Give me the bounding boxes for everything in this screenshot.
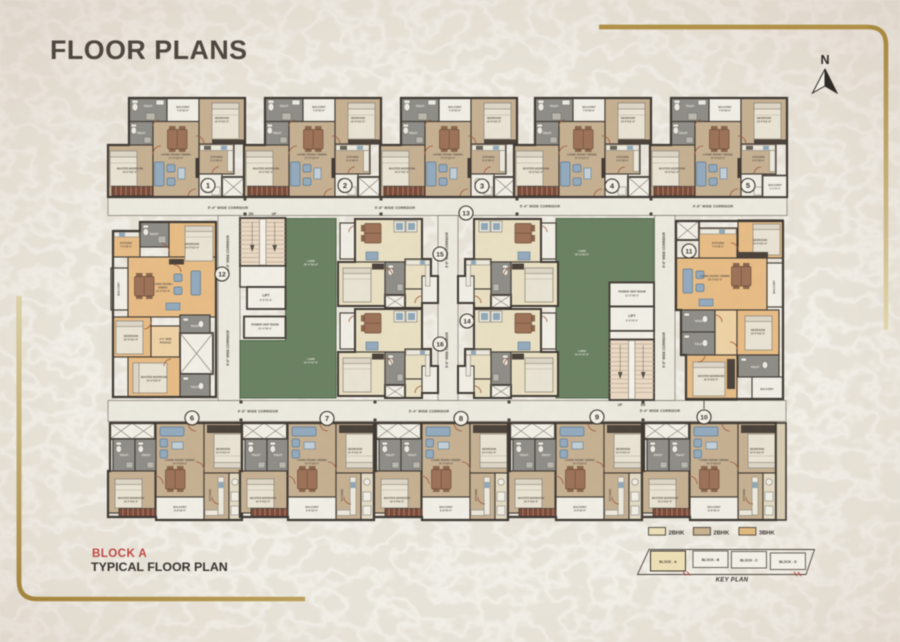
svg-text:N: N [820,53,829,67]
svg-text:2BHK: 2BHK [669,531,686,537]
svg-text:KEY PLAN: KEY PLAN [716,578,749,584]
svg-text:FLOOR PLANS: FLOOR PLANS [50,35,248,65]
svg-text:BLOCK - D: BLOCK - D [779,560,797,564]
svg-text:BLOCK - C: BLOCK - C [740,559,758,563]
svg-text:BLOCK A: BLOCK A [92,547,147,560]
svg-text:2BHK: 2BHK [713,531,730,537]
svg-text:3BHK: 3BHK [759,531,776,537]
svg-text:BLOCK - A: BLOCK - A [659,560,677,564]
svg-text:BLOCK - B: BLOCK - B [702,558,720,562]
svg-text:TYPICAL FLOOR PLAN: TYPICAL FLOOR PLAN [91,560,228,574]
